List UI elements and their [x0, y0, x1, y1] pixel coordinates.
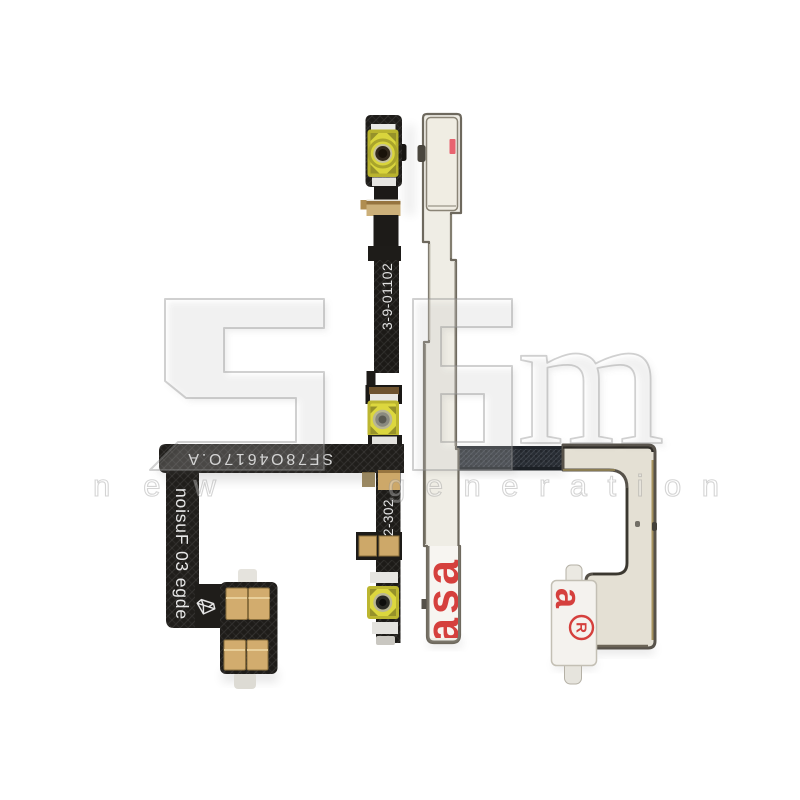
svg-text:generation: generation [388, 468, 740, 503]
svg-text:a: a [548, 588, 589, 609]
svg-text:R: R [573, 622, 590, 633]
svg-text:noisuF 03 egde: noisuF 03 egde [172, 488, 192, 620]
svg-text:2-302: 2-302 [381, 499, 396, 536]
svg-text:new: new [93, 468, 249, 503]
svg-text:3-9-01102: 3-9-01102 [379, 263, 395, 330]
svg-text:m: m [517, 275, 665, 485]
